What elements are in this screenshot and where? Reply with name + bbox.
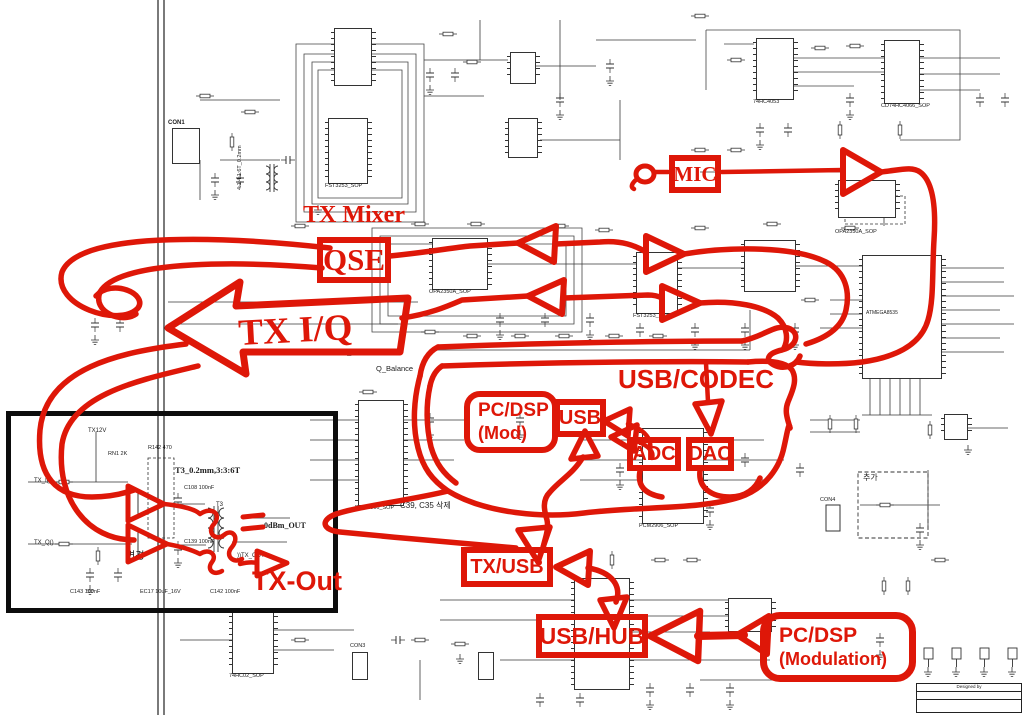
mixer-upper-wire2 [556,242,646,252]
adc-under-curl [639,471,662,497]
usb-down-squiggle [543,457,583,548]
txout-coil-scribble-2 [167,544,222,573]
rail-lower-hook [430,366,442,386]
mic-loop-path [796,169,935,364]
tx-usb-box: TX/USB [461,547,553,587]
usb-hub-box: USB/HUB [536,614,648,658]
red-annotation-layer: TX I/Q [0,0,1024,715]
dac-box: DAC [686,437,734,471]
tx-out-label: TX-Out [252,566,342,597]
pc-dsp-modulation-line2: (Modulation) [779,649,887,670]
qse-box: QSE [317,237,391,283]
pc-dsp-mod-line2: (Mod) [478,423,527,444]
dac-under-curl [700,471,760,497]
amp-arrow-right-2 [662,286,700,320]
adc-box: ADC [627,437,681,471]
usb-box: USB [554,399,606,437]
codec-loop-inner [427,386,456,483]
mixer-upper-wire [390,243,518,256]
mic-wire-out [722,170,843,172]
tx-mixer-label: TX Mixer [303,202,405,229]
rail-upper [438,341,742,347]
amp-arrow-left-1 [518,226,556,262]
mic-box: MIC [669,155,721,193]
loop-to-txusb [325,491,516,548]
mixer-lower-wire [402,296,528,318]
amp-arrow-left-2 [528,280,564,314]
pc-dsp-modulation-box: PC/DSP (Modulation) [760,612,916,682]
mixer-lower-wire2 [564,295,662,298]
schematic-page: FST3253_SOP 74HC4053 CD74HC4066_SOP OPA2… [0,0,1024,715]
mic-blob-tail [632,179,637,189]
pc-dsp-modulation-line1: PC/DSP [779,624,857,648]
amp-arrow-right-1 [646,236,684,272]
txout-amp-arrow-2 [128,525,167,562]
hub-big-left-arrow [650,611,700,661]
mic-amp-arrow [843,150,881,194]
txout-equals-marks [243,515,263,529]
txusb-left-arrow [556,551,590,585]
tx-iq-label: TX I/Q [237,307,353,354]
txout-amp-arrow-1 [128,486,164,521]
pc-dsp-mod-box: PC/DSP (Mod) [464,391,558,453]
dac-down-arrow [695,401,722,434]
txout-arrow-tail [240,562,257,564]
pc-dsp-mod-line1: PC/DSP [478,400,549,422]
usb-codec-label: USB/CODEC [618,364,774,395]
